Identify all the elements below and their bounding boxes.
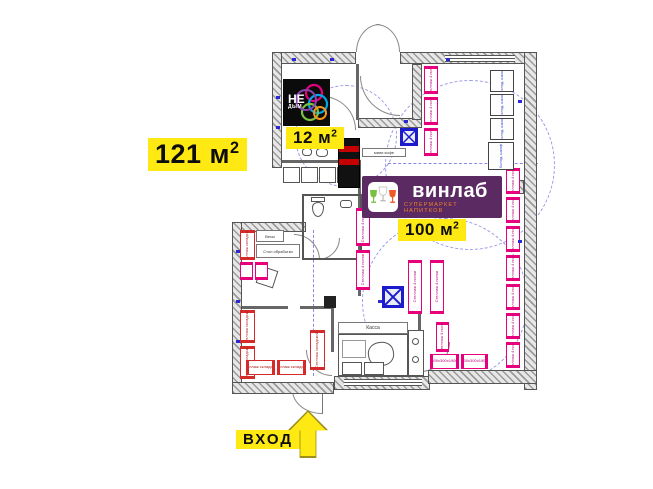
shelf-label: Стеллаж 4 полки	[511, 168, 515, 194]
dimension-line	[388, 163, 538, 164]
fridge-label: Холод. шкаф	[500, 94, 504, 116]
nedym-logo: НЕ ДЫМ	[283, 79, 330, 126]
storage-shelf-unit: Стеллаж складской	[310, 330, 325, 370]
dimension-tick	[276, 126, 280, 129]
area-sales-text: 100 м	[405, 220, 453, 239]
storage-shelf-label: Стеллаж складской	[245, 230, 249, 260]
door-arc	[376, 24, 400, 52]
arrow-fill	[290, 412, 326, 456]
fridge-label: Холод. шкаф	[500, 118, 504, 140]
wall	[272, 52, 356, 64]
shelf-unit: Стеллаж 4 полки	[506, 313, 520, 339]
shelf-unit: Стеллаж 4 полки	[356, 250, 370, 290]
vinlab-name: винлаб	[412, 181, 488, 201]
scales-label: Весы	[265, 234, 275, 239]
ceiling-device-icon	[382, 286, 404, 308]
shelf-unit: Стеллаж 4 полки	[408, 260, 422, 314]
area-small-text: 12 м	[293, 128, 331, 147]
vinlab-banner: винлаб СУПЕРМАРКЕТ НАПИТКОВ	[362, 176, 502, 218]
shelf-unit: 600х300х1900	[461, 354, 488, 369]
shelf-unit: Стеллаж 4 полки	[506, 342, 520, 368]
shelf-unit	[240, 262, 253, 280]
vinlab-wordmark: винлаб СУПЕРМАРКЕТ НАПИТКОВ	[404, 181, 496, 214]
cash-desk-top: Касса	[338, 322, 408, 334]
shelf-unit: Стеллаж 4 полки	[430, 260, 444, 314]
shelf-dims: 600х300х1900	[431, 359, 457, 363]
shelf-label: Стеллаж 4 полки	[429, 66, 433, 94]
wall	[412, 64, 422, 120]
fridge-unit: Холод. шкаф	[490, 118, 514, 140]
shelf-unit	[255, 262, 268, 280]
scales-box: Весы	[256, 230, 284, 242]
shelf-unit: Стеллаж 4 полки	[436, 322, 449, 352]
shelf-unit: Стеллаж 4 полки	[424, 66, 438, 94]
fridge-label: Холод. шкаф	[499, 144, 503, 168]
wc-room	[302, 194, 362, 260]
fridge-label: Холод. шкаф	[500, 70, 504, 92]
cash-side-unit	[408, 330, 424, 376]
storage-shelf-unit: Стеллаж складской	[240, 230, 255, 260]
entrance-text: ВХОД	[243, 431, 293, 448]
dimension-tick	[236, 250, 240, 253]
dimension-tick	[378, 300, 382, 303]
shelf-label: Стеллаж 4 полки	[440, 322, 444, 352]
shelf-unit: Стеллаж 4 полки	[506, 168, 520, 194]
counter-cell	[283, 167, 300, 183]
shelf-label: Стеллаж 4 полки	[413, 271, 417, 302]
shelf-label: Стеллаж 4 полки	[361, 254, 365, 285]
area-total-sup: 2	[230, 139, 240, 157]
wall	[272, 52, 282, 168]
dimension-tick	[292, 58, 296, 61]
dimension-tick	[518, 240, 522, 243]
ceiling-device-icon	[400, 128, 418, 146]
shelf-label: Стеллаж 4 полки	[511, 342, 515, 368]
wall	[428, 370, 537, 384]
shelf-unit: Стеллаж 4 полки	[506, 197, 520, 223]
toilet-tank	[311, 197, 325, 202]
partition	[356, 64, 359, 120]
storage-shelf-unit: Стеллаж складской	[246, 360, 275, 375]
shelf-unit: 600х300х1900	[430, 354, 459, 369]
vinlab-tagline: СУПЕРМАРКЕТ НАПИТКОВ	[404, 202, 496, 214]
partition	[331, 306, 334, 352]
wall	[232, 382, 334, 394]
fridge-unit: Холод. шкаф	[490, 94, 514, 116]
area-label-total: 121 м2	[148, 138, 247, 171]
shelf-label: Стеллаж 4 полки	[511, 197, 515, 223]
dimension-tick	[330, 58, 334, 61]
coffee-label: мини кофе	[374, 150, 394, 155]
floor-plan-canvas: Весы Стол обработки мини кофе Касса Стел…	[0, 0, 653, 489]
cash-drawing	[342, 340, 366, 358]
dimension-tick	[518, 100, 522, 103]
cash-side-dot	[412, 356, 419, 363]
storage-shelf-unit: Стеллаж складской	[240, 310, 255, 343]
shelf-unit: Стеллаж 4 полки	[506, 284, 520, 310]
cash-side-dot	[412, 338, 419, 345]
cash-cell	[364, 362, 384, 375]
wall	[524, 52, 537, 390]
storefront-window	[344, 379, 422, 386]
area-label-sales: 100 м2	[398, 219, 466, 241]
partition	[242, 306, 288, 309]
shelf-label: Стеллаж 4 полки	[429, 97, 433, 125]
shelf-dims: 600х300х1900	[461, 359, 487, 363]
shelf-label: Стеллаж 4 полки	[435, 271, 439, 302]
sink-icon	[302, 148, 312, 156]
dimension-tick	[404, 120, 408, 123]
dimension-tick	[236, 300, 240, 303]
nedym-text: НЕ ДЫМ	[288, 93, 305, 110]
storage-shelf-unit: Стеллаж складской	[277, 360, 306, 375]
storage-shelf-label: Стеллаж складской	[277, 365, 306, 369]
shelf-unit: Стеллаж 4 полки	[424, 128, 438, 156]
area-small-sup: 2	[331, 128, 337, 139]
dimension-tick	[446, 58, 450, 61]
shelf-unit: Стеллаж 4 полки	[506, 255, 520, 281]
cash-cell	[342, 362, 362, 375]
area-label-small: 12 м2	[286, 127, 344, 149]
prep-table-label: Стол обработки	[263, 249, 292, 254]
counter-cell	[319, 167, 336, 183]
dimension-tick	[276, 96, 280, 99]
counter-cell	[301, 167, 318, 183]
shelf-label: Стеллаж 4 полки	[511, 255, 515, 281]
entrance-arrow-icon	[288, 410, 328, 458]
coffee-point: мини кофе	[362, 148, 406, 157]
shelf-label: Стеллаж 4 полки	[511, 313, 515, 339]
shelf-label: Стеллаж 4 полки	[511, 284, 515, 310]
window	[445, 55, 515, 62]
cash-label: Касса	[366, 325, 379, 331]
wine-glasses-icon	[368, 182, 398, 212]
shelf-label: Стеллаж 4 полки	[511, 226, 515, 252]
area-sales-sup: 2	[453, 220, 459, 231]
storage-shelf-label: Стеллаж складской	[315, 332, 319, 368]
prep-table: Стол обработки	[256, 244, 300, 258]
storage-shelf-label: Стеллаж складской	[245, 310, 249, 343]
sink-icon	[316, 148, 328, 157]
equipment-box	[324, 296, 336, 308]
fridge-unit: Холод. шкаф	[488, 142, 514, 170]
shelf-unit: Стеллаж 4 полки	[424, 97, 438, 125]
shelf-label: Стеллаж 4 полки	[429, 128, 433, 156]
fridge-unit: Холод. шкаф	[490, 70, 514, 92]
dimension-tick	[236, 340, 240, 343]
storage-shelf-label: Стеллаж складской	[246, 365, 275, 369]
shelf-unit: Стеллаж 4 полки	[506, 226, 520, 252]
washbasin-icon	[340, 200, 352, 208]
area-total-text: 121 м	[155, 139, 230, 169]
